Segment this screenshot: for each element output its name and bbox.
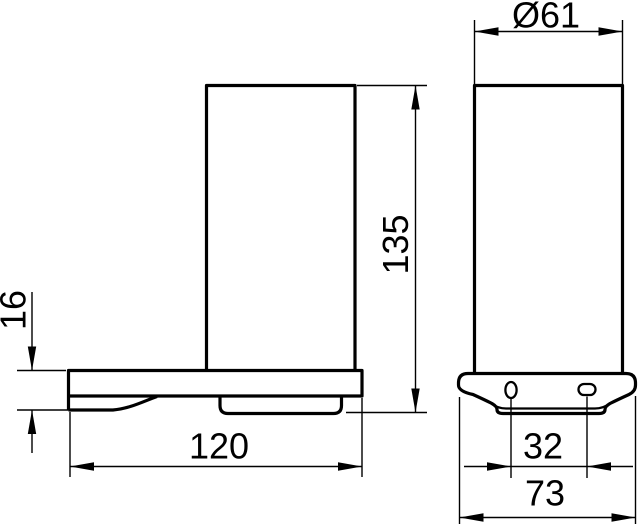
arrowhead-up xyxy=(411,86,419,110)
shelf-lip-outline xyxy=(69,397,158,411)
shelf-plate-outline xyxy=(69,371,363,411)
arrowhead-inward-right xyxy=(487,462,511,470)
arrowhead-down xyxy=(411,389,419,413)
arrowhead-down xyxy=(28,347,36,371)
dim-label-width: 73 xyxy=(525,473,565,514)
arrowhead-left xyxy=(70,462,94,470)
cup-side-outline xyxy=(207,86,356,371)
screw-hole-left xyxy=(505,382,516,398)
drawing-page: 135 16 120 xyxy=(0,0,640,531)
holder-ring-side-outline xyxy=(220,396,342,414)
arrowhead-up xyxy=(28,410,36,434)
dimension-height: 135 xyxy=(346,86,427,413)
dim-label-thickness: 16 xyxy=(0,290,34,330)
arrowhead-inward-left xyxy=(587,462,611,470)
dim-label-height: 135 xyxy=(375,214,416,274)
front-view: Ø61 32 73 xyxy=(459,0,636,524)
cup-front-outline xyxy=(475,86,623,374)
technical-drawing: 135 16 120 xyxy=(0,0,640,531)
side-view: 135 16 120 xyxy=(0,86,427,478)
dim-label-depth: 120 xyxy=(189,426,249,467)
arrowhead-left xyxy=(475,27,499,35)
dim-label-hole-spacing: 32 xyxy=(523,426,563,467)
screw-hole-right xyxy=(579,384,596,395)
dimension-thickness: 16 xyxy=(0,290,70,453)
dimension-diameter: Ø61 xyxy=(475,0,623,84)
dim-label-diameter: Ø61 xyxy=(512,0,580,36)
arrowhead-right xyxy=(612,513,636,521)
arrowhead-left xyxy=(460,513,484,521)
arrowhead-right xyxy=(599,27,623,35)
arrowhead-right xyxy=(338,462,362,470)
bracket-lip-inner-edge xyxy=(491,404,610,409)
